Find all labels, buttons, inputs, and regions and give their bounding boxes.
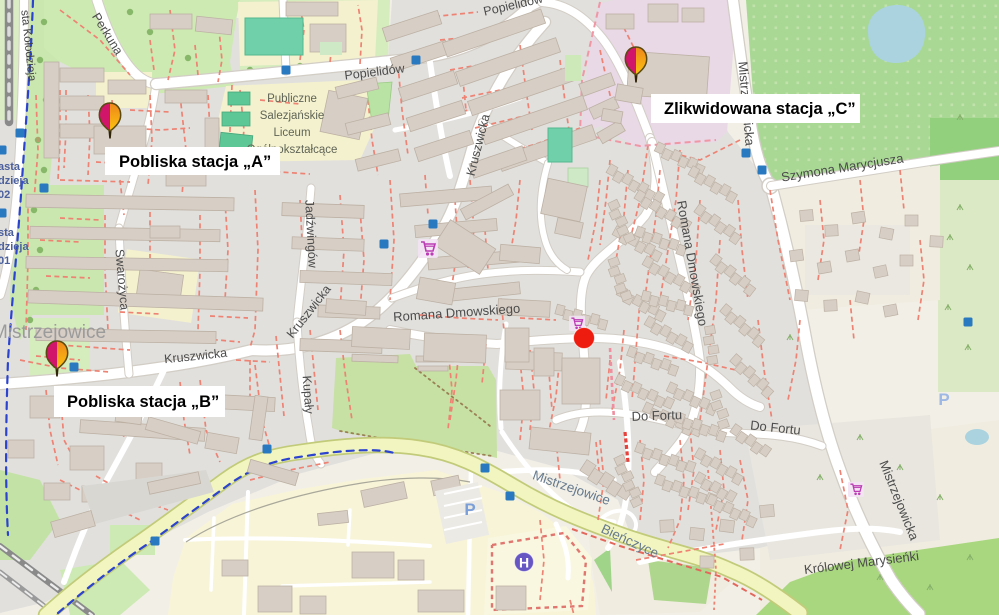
svg-text:P: P: [938, 390, 949, 409]
svg-text:Liceum: Liceum: [273, 127, 310, 139]
svg-text:Do Fortu: Do Fortu: [631, 407, 682, 424]
svg-text:P: P: [464, 500, 475, 519]
svg-text:sta: sta: [0, 227, 15, 239]
svg-text:02: 02: [0, 189, 10, 201]
svg-text:H: H: [519, 555, 529, 571]
svg-text:Pobliska stacja „A”: Pobliska stacja „A”: [119, 153, 271, 171]
svg-text:Zlikwidowana stacja „C”: Zlikwidowana stacja „C”: [664, 100, 856, 118]
svg-text:asta: asta: [0, 161, 21, 173]
svg-text:01: 01: [0, 255, 10, 267]
svg-text:Kupały: Kupały: [300, 375, 317, 415]
svg-text:dzieja: dzieja: [0, 241, 29, 253]
svg-text:Publiczne: Publiczne: [267, 93, 317, 105]
svg-text:dzieja: dzieja: [0, 175, 29, 187]
svg-text:Salezjańskie: Salezjańskie: [260, 110, 325, 122]
svg-text:Pobliska stacja „B”: Pobliska stacja „B”: [67, 393, 219, 411]
svg-text:Mistrzejowice: Mistrzejowice: [0, 322, 106, 343]
